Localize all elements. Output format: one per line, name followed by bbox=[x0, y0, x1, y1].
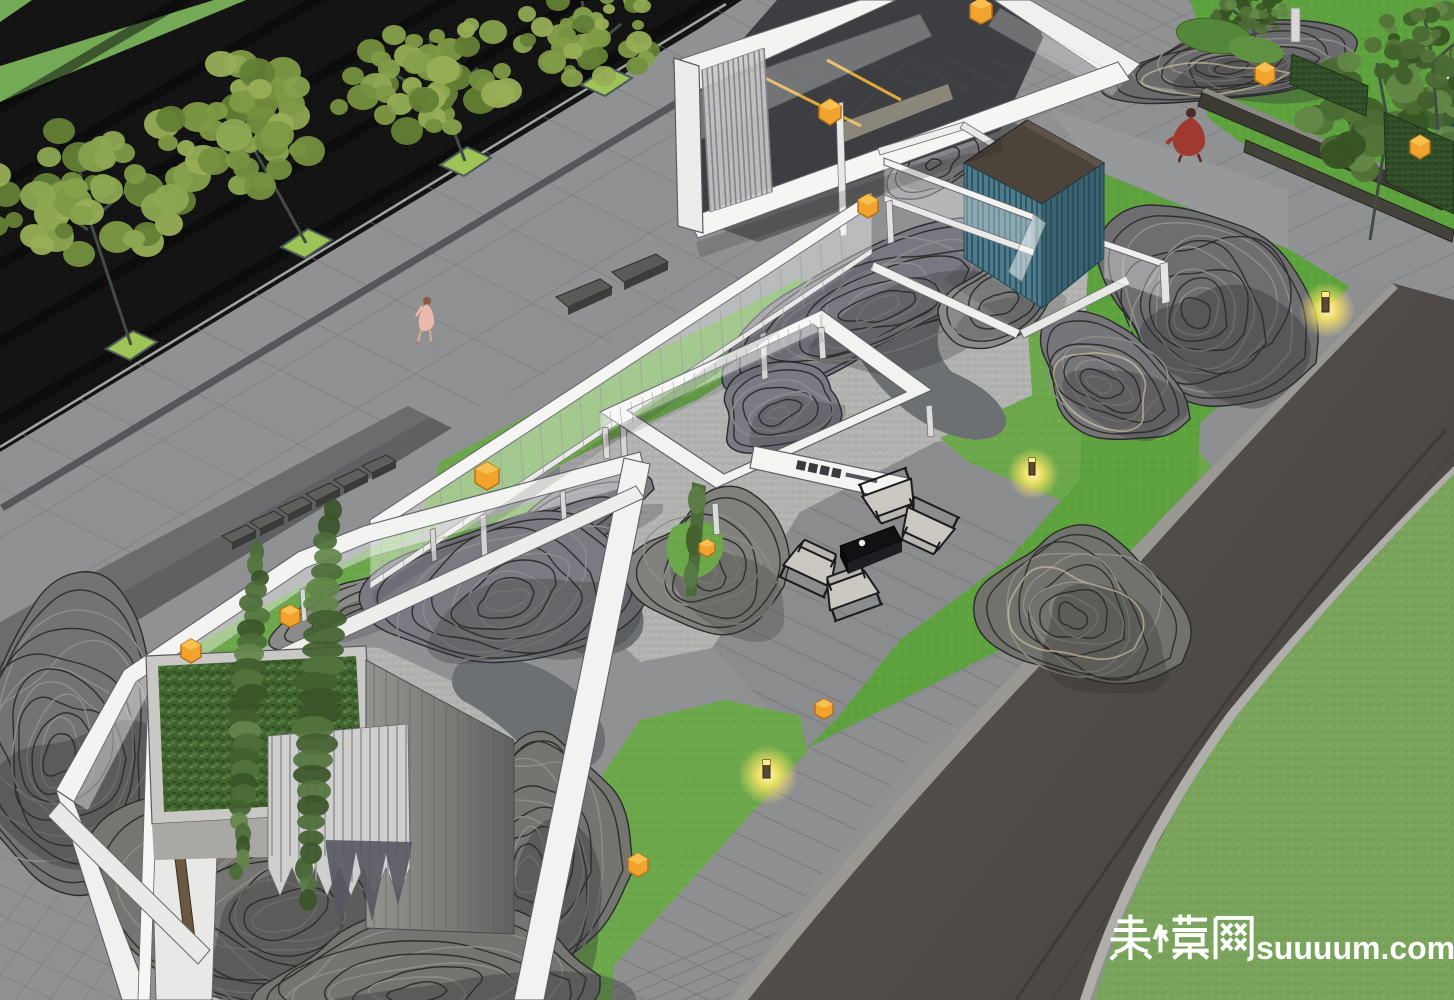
svg-text:suuuum.com: suuuum.com bbox=[1256, 930, 1454, 966]
